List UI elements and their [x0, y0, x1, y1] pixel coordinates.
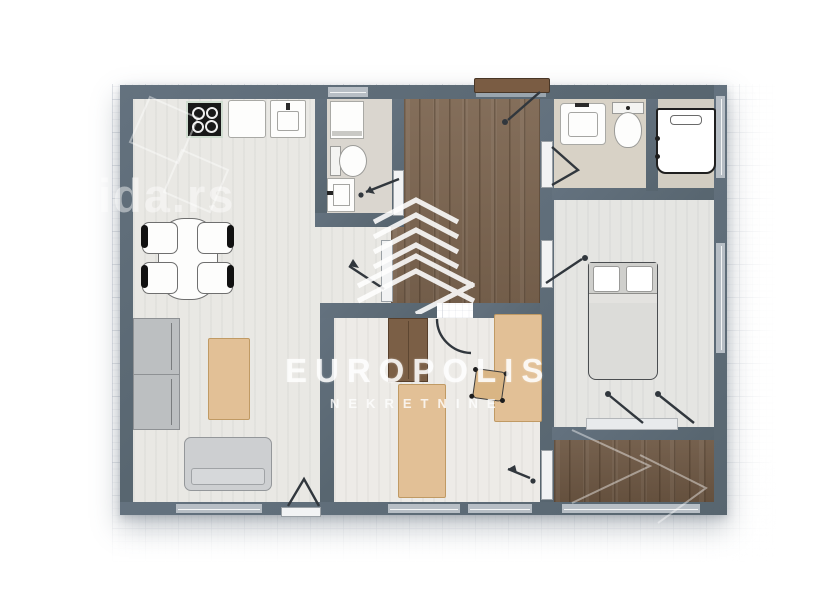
wall-kitchen-bathroom1	[315, 99, 327, 215]
dining-chair	[197, 222, 233, 254]
washbasin-icon	[560, 103, 606, 145]
wall-living-secondroom	[320, 303, 334, 502]
wall-top	[120, 85, 727, 99]
wall-bathroom1-bottom	[315, 213, 395, 227]
desk-bed-icon	[494, 314, 542, 422]
shower-unit-icon	[656, 108, 716, 174]
toilet-icon	[614, 112, 642, 148]
cabinet-icon	[133, 318, 180, 375]
wall-left	[120, 85, 133, 515]
hall-living-door-leaf	[381, 240, 393, 302]
kitchen-counter	[228, 100, 266, 138]
dining-chair	[142, 262, 178, 294]
wardrobe-icon	[388, 318, 428, 382]
dining-chair	[142, 222, 178, 254]
coffee-table	[208, 338, 250, 420]
washing-machine-icon	[330, 101, 364, 139]
double-bed-icon	[588, 262, 658, 380]
wall-hall-secondroom-left	[320, 303, 437, 318]
window-utility	[716, 96, 725, 178]
dining-chair	[197, 262, 233, 294]
terrace-floor	[554, 440, 714, 502]
floorplan-image: EUROPOLIS NEKRETNINE ida.rs	[0, 0, 826, 600]
single-bed-icon	[398, 384, 446, 498]
kitchen-sink-icon	[270, 100, 306, 138]
living-room-door-leaf	[281, 507, 321, 517]
window-top-bathroom1	[328, 87, 368, 97]
toilet-icon	[339, 145, 367, 177]
balcony-door-threshold	[586, 418, 678, 430]
chair-icon	[472, 368, 506, 402]
bedroom-door-leaf	[541, 240, 553, 288]
window-terrace	[562, 504, 700, 513]
entry-door-icon	[474, 78, 550, 93]
entry-hall-floor	[404, 99, 540, 303]
bathroom1-door-leaf	[393, 170, 404, 216]
washbasin-icon	[327, 178, 355, 212]
sofa-icon	[184, 437, 272, 491]
stove-icon	[186, 101, 223, 138]
secondroom-terrace-door-leaf	[541, 450, 553, 500]
window-living-room	[176, 504, 262, 513]
cabinet-icon	[133, 374, 180, 430]
floorplan	[120, 85, 727, 515]
window-bedroom	[716, 243, 725, 353]
window-second-room-b	[468, 504, 532, 513]
bathroom2-door-leaf	[541, 141, 553, 188]
window-second-room-a	[388, 504, 460, 513]
wall-bathroom2-bottom	[552, 188, 714, 200]
